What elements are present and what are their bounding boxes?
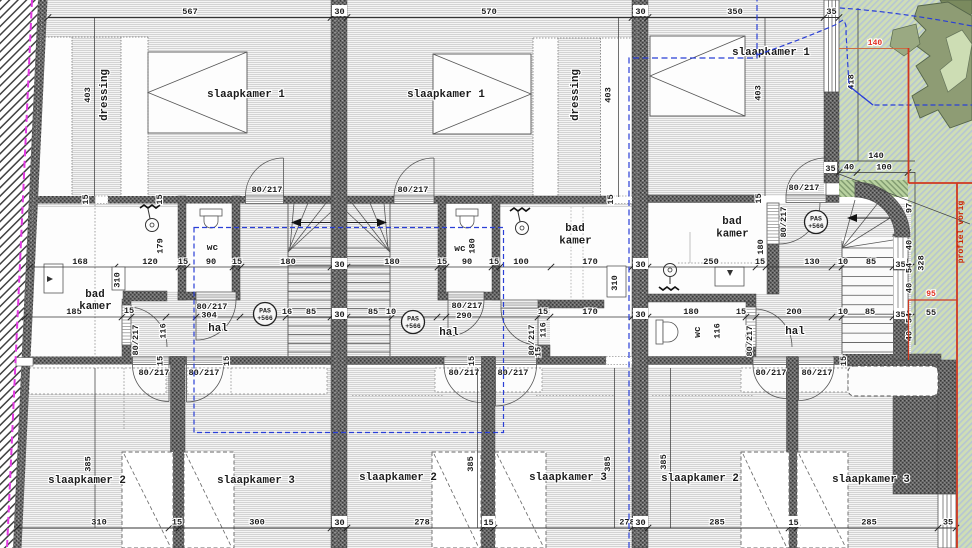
svg-text:15: 15 — [754, 193, 764, 203]
svg-text:bad: bad — [85, 289, 104, 301]
svg-text:10: 10 — [838, 257, 848, 267]
svg-text:278: 278 — [619, 518, 634, 528]
svg-text:100: 100 — [876, 163, 891, 173]
svg-text:250: 250 — [703, 257, 718, 267]
svg-text:310: 310 — [91, 518, 106, 528]
svg-text:30: 30 — [635, 260, 645, 270]
svg-text:97: 97 — [905, 203, 915, 213]
svg-text:180: 180 — [280, 257, 295, 267]
svg-text:slaapkamer 3: slaapkamer 3 — [529, 472, 607, 484]
svg-text:170: 170 — [582, 307, 597, 317]
svg-text:profiel vorig: profiel vorig — [957, 201, 966, 264]
svg-text:80/217: 80/217 — [789, 183, 820, 193]
svg-text:10: 10 — [386, 307, 396, 317]
svg-text:80/217: 80/217 — [252, 185, 283, 195]
svg-text:15: 15 — [788, 518, 798, 528]
svg-text:95: 95 — [926, 290, 936, 299]
svg-text:30: 30 — [334, 310, 344, 320]
svg-text:385: 385 — [466, 456, 476, 471]
svg-text:140: 140 — [868, 39, 883, 48]
svg-text:15: 15 — [755, 257, 765, 267]
svg-text:35: 35 — [826, 7, 836, 17]
svg-text:+566: +566 — [808, 223, 824, 230]
svg-text:30: 30 — [635, 310, 645, 320]
svg-text:kamer: kamer — [559, 236, 591, 248]
svg-text:403: 403 — [83, 87, 93, 102]
svg-text:hal: hal — [785, 326, 805, 338]
svg-text:10: 10 — [838, 307, 848, 317]
svg-text:85: 85 — [866, 257, 876, 267]
svg-text:179: 179 — [156, 238, 166, 253]
svg-text:80/217: 80/217 — [802, 368, 833, 378]
svg-text:15: 15 — [172, 518, 182, 528]
svg-text:304: 304 — [201, 311, 216, 321]
svg-text:385: 385 — [603, 456, 613, 471]
svg-text:30: 30 — [334, 518, 344, 528]
svg-text:40: 40 — [905, 240, 915, 250]
svg-text:15: 15 — [178, 257, 188, 267]
svg-text:116: 116 — [539, 322, 549, 337]
svg-text:180: 180 — [384, 257, 399, 267]
svg-text:116: 116 — [159, 323, 169, 338]
svg-text:403: 403 — [754, 85, 764, 100]
svg-text:16: 16 — [282, 307, 292, 317]
svg-text:wc: wc — [207, 242, 219, 253]
svg-text:90: 90 — [206, 257, 216, 267]
svg-text:403: 403 — [604, 87, 614, 102]
svg-text:310: 310 — [113, 272, 123, 287]
svg-text:15: 15 — [155, 194, 165, 204]
svg-text:hal: hal — [439, 327, 459, 339]
svg-text:80/217: 80/217 — [189, 368, 220, 378]
svg-text:85: 85 — [306, 307, 316, 317]
svg-text:slaapkamer 2: slaapkamer 2 — [661, 473, 739, 485]
svg-text:54: 54 — [905, 263, 915, 273]
svg-text:285: 285 — [709, 518, 724, 528]
svg-text:15: 15 — [232, 257, 242, 267]
svg-text:80/217: 80/217 — [498, 368, 529, 378]
svg-text:80/217: 80/217 — [779, 207, 789, 238]
svg-text:116: 116 — [713, 323, 723, 338]
svg-text:168: 168 — [72, 257, 87, 267]
svg-text:15: 15 — [489, 257, 499, 267]
svg-text:300: 300 — [249, 518, 264, 528]
svg-text:PAS: PAS — [810, 216, 822, 223]
svg-text:wc: wc — [454, 243, 466, 254]
svg-text:80/217: 80/217 — [131, 325, 141, 356]
svg-text:328: 328 — [917, 255, 927, 270]
svg-text:140: 140 — [868, 151, 883, 161]
svg-text:180: 180 — [468, 238, 478, 253]
svg-text:15: 15 — [222, 356, 232, 366]
svg-text:slaapkamer 2: slaapkamer 2 — [48, 475, 126, 487]
svg-text:350: 350 — [727, 7, 742, 17]
svg-text:385: 385 — [659, 454, 669, 469]
svg-text:290: 290 — [456, 311, 471, 321]
svg-text:100: 100 — [513, 257, 528, 267]
svg-text:35: 35 — [825, 164, 835, 174]
svg-text:180: 180 — [683, 307, 698, 317]
svg-text:80/217: 80/217 — [745, 326, 755, 357]
svg-text:35: 35 — [943, 518, 953, 528]
svg-text:80/217: 80/217 — [139, 368, 170, 378]
svg-text:15: 15 — [124, 306, 134, 316]
svg-text:278: 278 — [414, 518, 429, 528]
svg-text:hal: hal — [208, 323, 228, 335]
svg-text:285: 285 — [861, 518, 876, 528]
svg-text:slaapkamer 1: slaapkamer 1 — [207, 89, 285, 101]
svg-text:slaapkamer 3: slaapkamer 3 — [832, 474, 910, 486]
svg-text:15: 15 — [483, 518, 493, 528]
svg-text:80/217: 80/217 — [398, 185, 429, 195]
svg-text:200: 200 — [786, 307, 801, 317]
svg-text:PAS: PAS — [259, 308, 271, 315]
svg-text:80/217: 80/217 — [756, 368, 787, 378]
svg-text:40: 40 — [905, 283, 915, 293]
svg-text:130: 130 — [804, 257, 819, 267]
svg-text:85: 85 — [368, 307, 378, 317]
svg-text:30: 30 — [635, 518, 645, 528]
svg-text:PAS: PAS — [407, 316, 419, 323]
svg-text:+566: +566 — [405, 323, 421, 330]
svg-text:30: 30 — [635, 7, 645, 17]
svg-text:30: 30 — [334, 7, 344, 17]
svg-text:40: 40 — [844, 163, 854, 173]
svg-text:570: 570 — [481, 7, 496, 17]
svg-text:15: 15 — [736, 307, 746, 317]
svg-text:bad: bad — [722, 216, 741, 228]
svg-text:120: 120 — [142, 257, 157, 267]
svg-text:85: 85 — [865, 307, 875, 317]
svg-text:slaapkamer 1: slaapkamer 1 — [407, 89, 485, 101]
svg-text:170: 170 — [582, 257, 597, 267]
svg-text:kamer: kamer — [79, 301, 111, 313]
svg-text:30: 30 — [334, 260, 344, 270]
svg-text:15: 15 — [606, 194, 616, 204]
svg-text:80/217: 80/217 — [452, 301, 483, 311]
svg-text:kamer: kamer — [716, 229, 748, 241]
svg-text:90: 90 — [462, 257, 472, 267]
svg-text:wc: wc — [692, 326, 703, 338]
svg-text:310: 310 — [610, 275, 620, 290]
svg-text:567: 567 — [182, 7, 197, 17]
svg-text:15: 15 — [81, 194, 91, 204]
svg-text:15: 15 — [467, 356, 477, 366]
svg-text:slaapkamer 2: slaapkamer 2 — [359, 472, 437, 484]
svg-text:15: 15 — [839, 356, 849, 366]
svg-text:15: 15 — [437, 257, 447, 267]
svg-text:15: 15 — [538, 307, 548, 317]
svg-text:bad: bad — [565, 223, 584, 235]
svg-text:15: 15 — [156, 356, 166, 366]
svg-text:385: 385 — [84, 456, 94, 471]
svg-text:15: 15 — [534, 347, 544, 357]
svg-text:180: 180 — [756, 239, 766, 254]
svg-text:dressing: dressing — [570, 69, 582, 121]
svg-text:slaapkamer 1: slaapkamer 1 — [732, 47, 810, 59]
svg-text:55: 55 — [926, 308, 936, 318]
svg-text:80/217: 80/217 — [449, 368, 480, 378]
svg-text:dressing: dressing — [99, 69, 111, 121]
svg-text:+566: +566 — [257, 315, 273, 322]
svg-text:40: 40 — [905, 331, 915, 341]
svg-text:slaapkamer 3: slaapkamer 3 — [217, 475, 295, 487]
svg-text:54: 54 — [905, 313, 915, 323]
